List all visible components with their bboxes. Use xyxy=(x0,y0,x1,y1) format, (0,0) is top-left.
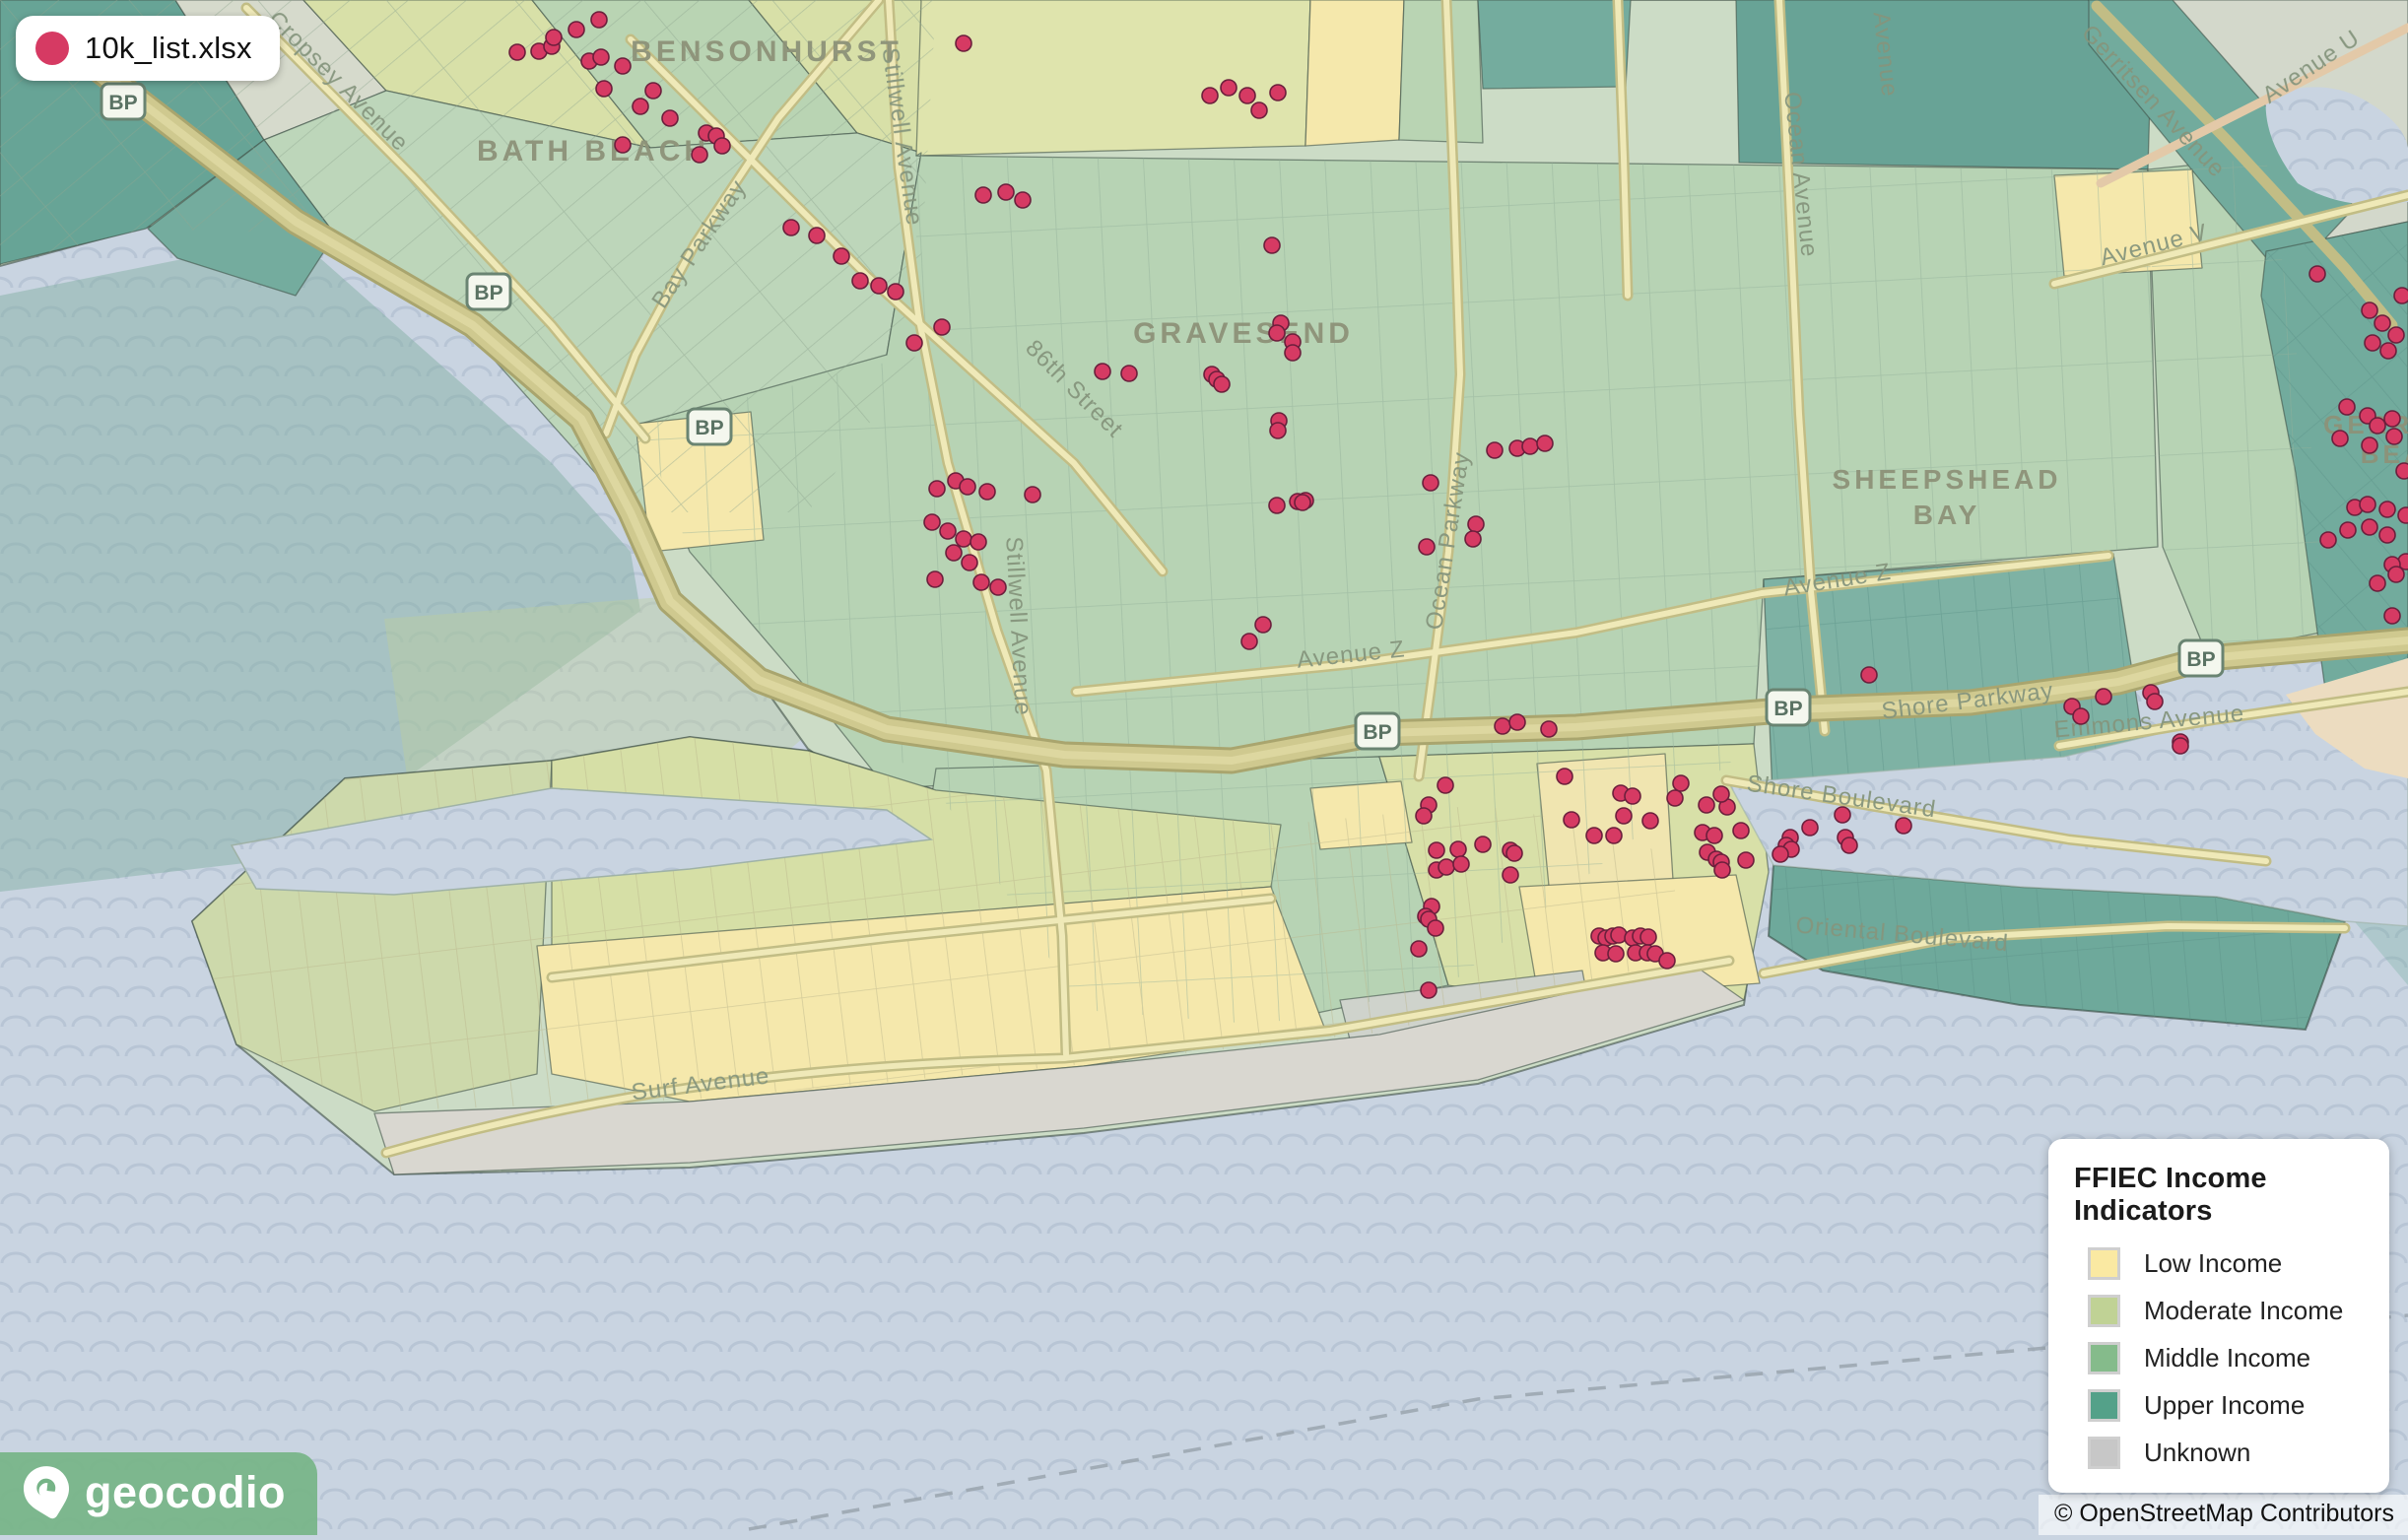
svg-text:BP: BP xyxy=(2186,648,2215,671)
geocoded-point-marker[interactable] xyxy=(975,187,991,203)
legend-item: Middle Income xyxy=(2088,1342,2364,1374)
geocoded-point-marker[interactable] xyxy=(633,99,648,114)
geocoded-point-marker[interactable] xyxy=(2362,519,2377,535)
geocoded-point-marker[interactable] xyxy=(1429,842,1444,858)
geocoded-point-marker[interactable] xyxy=(546,30,562,45)
geocoded-point-marker[interactable] xyxy=(1738,852,1754,868)
geocoded-point-marker[interactable] xyxy=(2396,463,2408,479)
geocoded-point-marker[interactable] xyxy=(1557,769,1572,784)
geocoded-point-marker[interactable] xyxy=(1095,364,1110,379)
geocoded-point-marker[interactable] xyxy=(1255,617,1271,633)
neighborhood-label: BAY xyxy=(1913,500,1981,530)
geocoded-point-marker[interactable] xyxy=(1214,376,1230,392)
geocodio-wordmark: geocodio xyxy=(85,1467,286,1518)
geocoded-point-marker[interactable] xyxy=(2309,266,2325,282)
geocoded-point-marker[interactable] xyxy=(979,484,995,500)
bp-route-shield: BP xyxy=(1356,713,1399,749)
legend-label: Moderate Income xyxy=(2144,1296,2343,1326)
legend-swatch xyxy=(2088,1247,2120,1280)
geocoded-point-marker[interactable] xyxy=(940,523,956,539)
legend-item: Unknown xyxy=(2088,1437,2364,1469)
geocoded-point-marker[interactable] xyxy=(2362,302,2377,318)
geocoded-point-marker[interactable] xyxy=(1506,845,1522,861)
geocoded-point-marker[interactable] xyxy=(946,545,962,561)
geocoded-point-marker[interactable] xyxy=(1802,820,1818,836)
legend-item: Upper Income xyxy=(2088,1389,2364,1422)
geocoded-point-marker[interactable] xyxy=(1495,718,1510,734)
geocoded-point-marker[interactable] xyxy=(1453,856,1469,872)
geocoded-point-marker[interactable] xyxy=(1706,828,1722,843)
geocoded-point-marker[interactable] xyxy=(1411,941,1427,957)
geocoded-point-marker[interactable] xyxy=(1264,237,1280,253)
geocoded-point-marker[interactable] xyxy=(1421,982,1437,998)
geocoded-point-marker[interactable] xyxy=(1015,192,1031,208)
geocoded-point-marker[interactable] xyxy=(783,220,799,235)
legend-title: FFIEC Income Indicators xyxy=(2074,1163,2364,1228)
geocoded-point-marker[interactable] xyxy=(596,81,612,97)
svg-text:BP: BP xyxy=(1363,721,1391,744)
bp-route-shield: BP xyxy=(101,84,145,119)
geocoded-point-marker[interactable] xyxy=(2332,431,2348,446)
geocoded-point-marker[interactable] xyxy=(929,481,945,497)
geocoded-point-marker[interactable] xyxy=(1733,823,1749,838)
geocoded-point-marker[interactable] xyxy=(2173,738,2188,754)
geocoded-point-marker[interactable] xyxy=(1295,495,1310,510)
geocoded-point-marker[interactable] xyxy=(591,12,607,28)
geocoded-point-marker[interactable] xyxy=(2370,575,2385,591)
geocodio-pin-icon xyxy=(22,1464,73,1521)
geocoded-point-marker[interactable] xyxy=(1025,487,1040,502)
geocoded-point-marker[interactable] xyxy=(1773,846,1788,862)
geocoded-point-marker[interactable] xyxy=(2096,689,2111,704)
geocoded-point-marker[interactable] xyxy=(906,335,922,351)
geocoded-point-marker[interactable] xyxy=(2147,694,2163,709)
geocoded-point-marker[interactable] xyxy=(1465,531,1481,547)
geocoded-point-marker[interactable] xyxy=(1241,634,1257,649)
geocoded-point-marker[interactable] xyxy=(2320,532,2336,548)
geocoded-point-marker[interactable] xyxy=(927,571,943,587)
geocoded-point-marker[interactable] xyxy=(2339,399,2355,415)
dataset-file-name: 10k_list.xlsx xyxy=(85,31,252,66)
geocoded-point-marker[interactable] xyxy=(1419,539,1435,555)
geocoded-point-marker[interactable] xyxy=(1202,88,1218,103)
geocoded-point-marker[interactable] xyxy=(924,514,940,530)
geocoded-point-marker[interactable] xyxy=(662,110,678,126)
geocoded-point-marker[interactable] xyxy=(645,83,661,99)
geocoded-point-marker[interactable] xyxy=(1541,721,1557,737)
neighborhood-label: GRAVESEND xyxy=(1133,317,1354,350)
map-canvas[interactable]: Cropsey AvenueBay Parkway86th StreetStil… xyxy=(0,0,2408,1535)
geocoded-point-marker[interactable] xyxy=(1487,442,1503,458)
geocoded-point-marker[interactable] xyxy=(615,137,631,153)
geocoded-point-marker[interactable] xyxy=(692,147,707,163)
geocoded-point-marker[interactable] xyxy=(509,44,525,60)
svg-text:BP: BP xyxy=(1773,698,1802,720)
geocoded-point-marker[interactable] xyxy=(2379,527,2395,543)
geocoded-point-marker[interactable] xyxy=(593,49,609,65)
geocoded-point-marker[interactable] xyxy=(809,228,825,243)
geocoded-point-marker[interactable] xyxy=(2365,335,2380,351)
geocoded-point-marker[interactable] xyxy=(1586,828,1602,843)
geocoded-point-marker[interactable] xyxy=(1509,714,1525,730)
geocoded-point-marker[interactable] xyxy=(1667,790,1683,806)
geocoded-point-marker[interactable] xyxy=(1835,807,1850,823)
geocoded-point-marker[interactable] xyxy=(2362,437,2377,453)
map-stage[interactable]: Cropsey AvenueBay Parkway86th StreetStil… xyxy=(0,0,2408,1535)
geocoded-point-marker[interactable] xyxy=(1841,837,1857,853)
osm-attribution-link[interactable]: © OpenStreetMap Contributors xyxy=(2054,1500,2394,1527)
geocoded-point-marker[interactable] xyxy=(990,579,1006,595)
legend-label: Middle Income xyxy=(2144,1343,2310,1373)
geocoded-point-marker[interactable] xyxy=(1659,953,1675,969)
svg-text:BP: BP xyxy=(695,417,723,439)
geocoded-point-marker[interactable] xyxy=(2388,567,2404,582)
geocoded-point-marker[interactable] xyxy=(970,534,986,550)
geocoded-point-marker[interactable] xyxy=(1606,828,1622,843)
geocoded-point-marker[interactable] xyxy=(1537,435,1553,451)
geocoded-point-marker[interactable] xyxy=(1438,859,1454,875)
geocoded-point-marker[interactable] xyxy=(2386,429,2402,444)
geocoded-point-marker[interactable] xyxy=(1468,516,1484,532)
bp-route-shield: BP xyxy=(688,409,731,444)
geocodio-logo[interactable]: geocodio xyxy=(0,1452,317,1535)
legend-item: Moderate Income xyxy=(2088,1295,2364,1327)
geocoded-point-marker[interactable] xyxy=(2384,608,2400,624)
legend-item: Low Income xyxy=(2088,1247,2364,1280)
geocoded-point-marker[interactable] xyxy=(1270,85,1286,100)
geocoded-point-marker[interactable] xyxy=(1270,423,1286,438)
legend-swatch xyxy=(2088,1342,2120,1374)
geocoded-point-marker[interactable] xyxy=(1475,837,1491,852)
geocoded-point-marker[interactable] xyxy=(2360,497,2375,512)
geocoded-point-marker[interactable] xyxy=(1269,325,1285,341)
geocoded-point-marker[interactable] xyxy=(852,273,868,289)
legend-label: Low Income xyxy=(2144,1248,2282,1279)
geocoded-point-marker[interactable] xyxy=(1269,498,1285,513)
geocoded-point-marker[interactable] xyxy=(973,574,989,590)
geocoded-point-marker[interactable] xyxy=(871,278,887,294)
neighborhood-label: BATH BEACH xyxy=(477,135,709,167)
neighborhood-label: SHEEPSHEAD xyxy=(1833,464,2062,495)
geocoded-point-marker[interactable] xyxy=(2379,502,2395,517)
neighborhood-label: BENSONHURST xyxy=(631,35,903,68)
legend-items: Low IncomeModerate IncomeMiddle IncomeUp… xyxy=(2074,1247,2364,1469)
geocoded-point-marker[interactable] xyxy=(2375,315,2390,331)
geocoded-point-marker[interactable] xyxy=(1625,788,1640,804)
geocoded-point-marker[interactable] xyxy=(1239,88,1255,103)
geocoded-point-marker[interactable] xyxy=(1640,929,1656,945)
geocoded-point-marker[interactable] xyxy=(1503,867,1518,883)
geocoded-point-marker[interactable] xyxy=(1896,818,1911,834)
geocoded-point-marker[interactable] xyxy=(569,22,584,37)
geocoded-point-marker[interactable] xyxy=(2380,343,2396,359)
geocoded-point-marker[interactable] xyxy=(1699,797,1714,813)
geocoded-point-marker[interactable] xyxy=(1416,808,1432,824)
geocoded-point-marker[interactable] xyxy=(1713,786,1729,802)
geocoded-point-marker[interactable] xyxy=(2384,411,2400,427)
bp-route-shield: BP xyxy=(467,274,510,309)
geocoded-point-marker[interactable] xyxy=(714,138,730,154)
geocoded-point-marker[interactable] xyxy=(1121,366,1137,381)
geocoded-point-marker[interactable] xyxy=(1438,777,1453,793)
geocoded-point-marker[interactable] xyxy=(1642,813,1658,829)
geocoded-point-marker[interactable] xyxy=(960,479,975,495)
geocoded-point-marker[interactable] xyxy=(1673,775,1689,791)
geocoded-point-marker[interactable] xyxy=(1423,475,1438,491)
geocoded-point-marker[interactable] xyxy=(1428,920,1443,936)
geocoded-point-marker[interactable] xyxy=(1221,80,1237,96)
income-legend: FFIEC Income Indicators Low IncomeModera… xyxy=(2048,1139,2389,1493)
geocoded-point-marker[interactable] xyxy=(962,555,977,570)
geocoded-point-marker[interactable] xyxy=(1251,102,1267,118)
geocoded-point-marker[interactable] xyxy=(1564,812,1579,828)
geocoded-point-marker[interactable] xyxy=(1450,841,1466,857)
geocoded-point-marker[interactable] xyxy=(956,531,971,547)
geocoded-point-marker[interactable] xyxy=(2340,522,2356,538)
geocoded-point-marker[interactable] xyxy=(2398,507,2408,523)
geocoded-point-marker[interactable] xyxy=(1616,808,1632,824)
bp-route-shield: BP xyxy=(1767,690,1810,725)
dataset-marker-dot-icon xyxy=(35,32,69,65)
geocoded-point-marker[interactable] xyxy=(934,319,950,335)
geocoded-point-marker[interactable] xyxy=(2073,708,2089,724)
geocoded-point-marker[interactable] xyxy=(2394,288,2408,303)
geocoded-point-marker[interactable] xyxy=(2388,327,2404,343)
bp-route-shield: BP xyxy=(2179,640,2223,676)
legend-swatch xyxy=(2088,1295,2120,1327)
geocoded-point-marker[interactable] xyxy=(615,58,631,74)
geocoded-point-marker[interactable] xyxy=(1285,345,1301,361)
legend-swatch xyxy=(2088,1389,2120,1422)
geocoded-point-marker[interactable] xyxy=(1861,667,1877,683)
geocoded-point-marker[interactable] xyxy=(834,248,849,264)
legend-swatch xyxy=(2088,1437,2120,1469)
geocoded-point-marker[interactable] xyxy=(2370,418,2385,434)
svg-text:BP: BP xyxy=(474,282,502,304)
geocoded-point-marker[interactable] xyxy=(956,35,971,51)
map-attribution: © OpenStreetMap Contributors xyxy=(2039,1495,2408,1535)
legend-label: Unknown xyxy=(2144,1438,2250,1468)
geocoded-point-marker[interactable] xyxy=(888,284,903,300)
geocoded-point-marker[interactable] xyxy=(1714,862,1730,878)
svg-text:BP: BP xyxy=(108,92,137,114)
geocoded-point-marker[interactable] xyxy=(1608,946,1624,962)
legend-label: Upper Income xyxy=(2144,1390,2305,1421)
geocoded-point-marker[interactable] xyxy=(1522,438,1538,454)
dataset-file-chip[interactable]: 10k_list.xlsx xyxy=(16,16,280,81)
geocoded-point-marker[interactable] xyxy=(998,184,1014,200)
